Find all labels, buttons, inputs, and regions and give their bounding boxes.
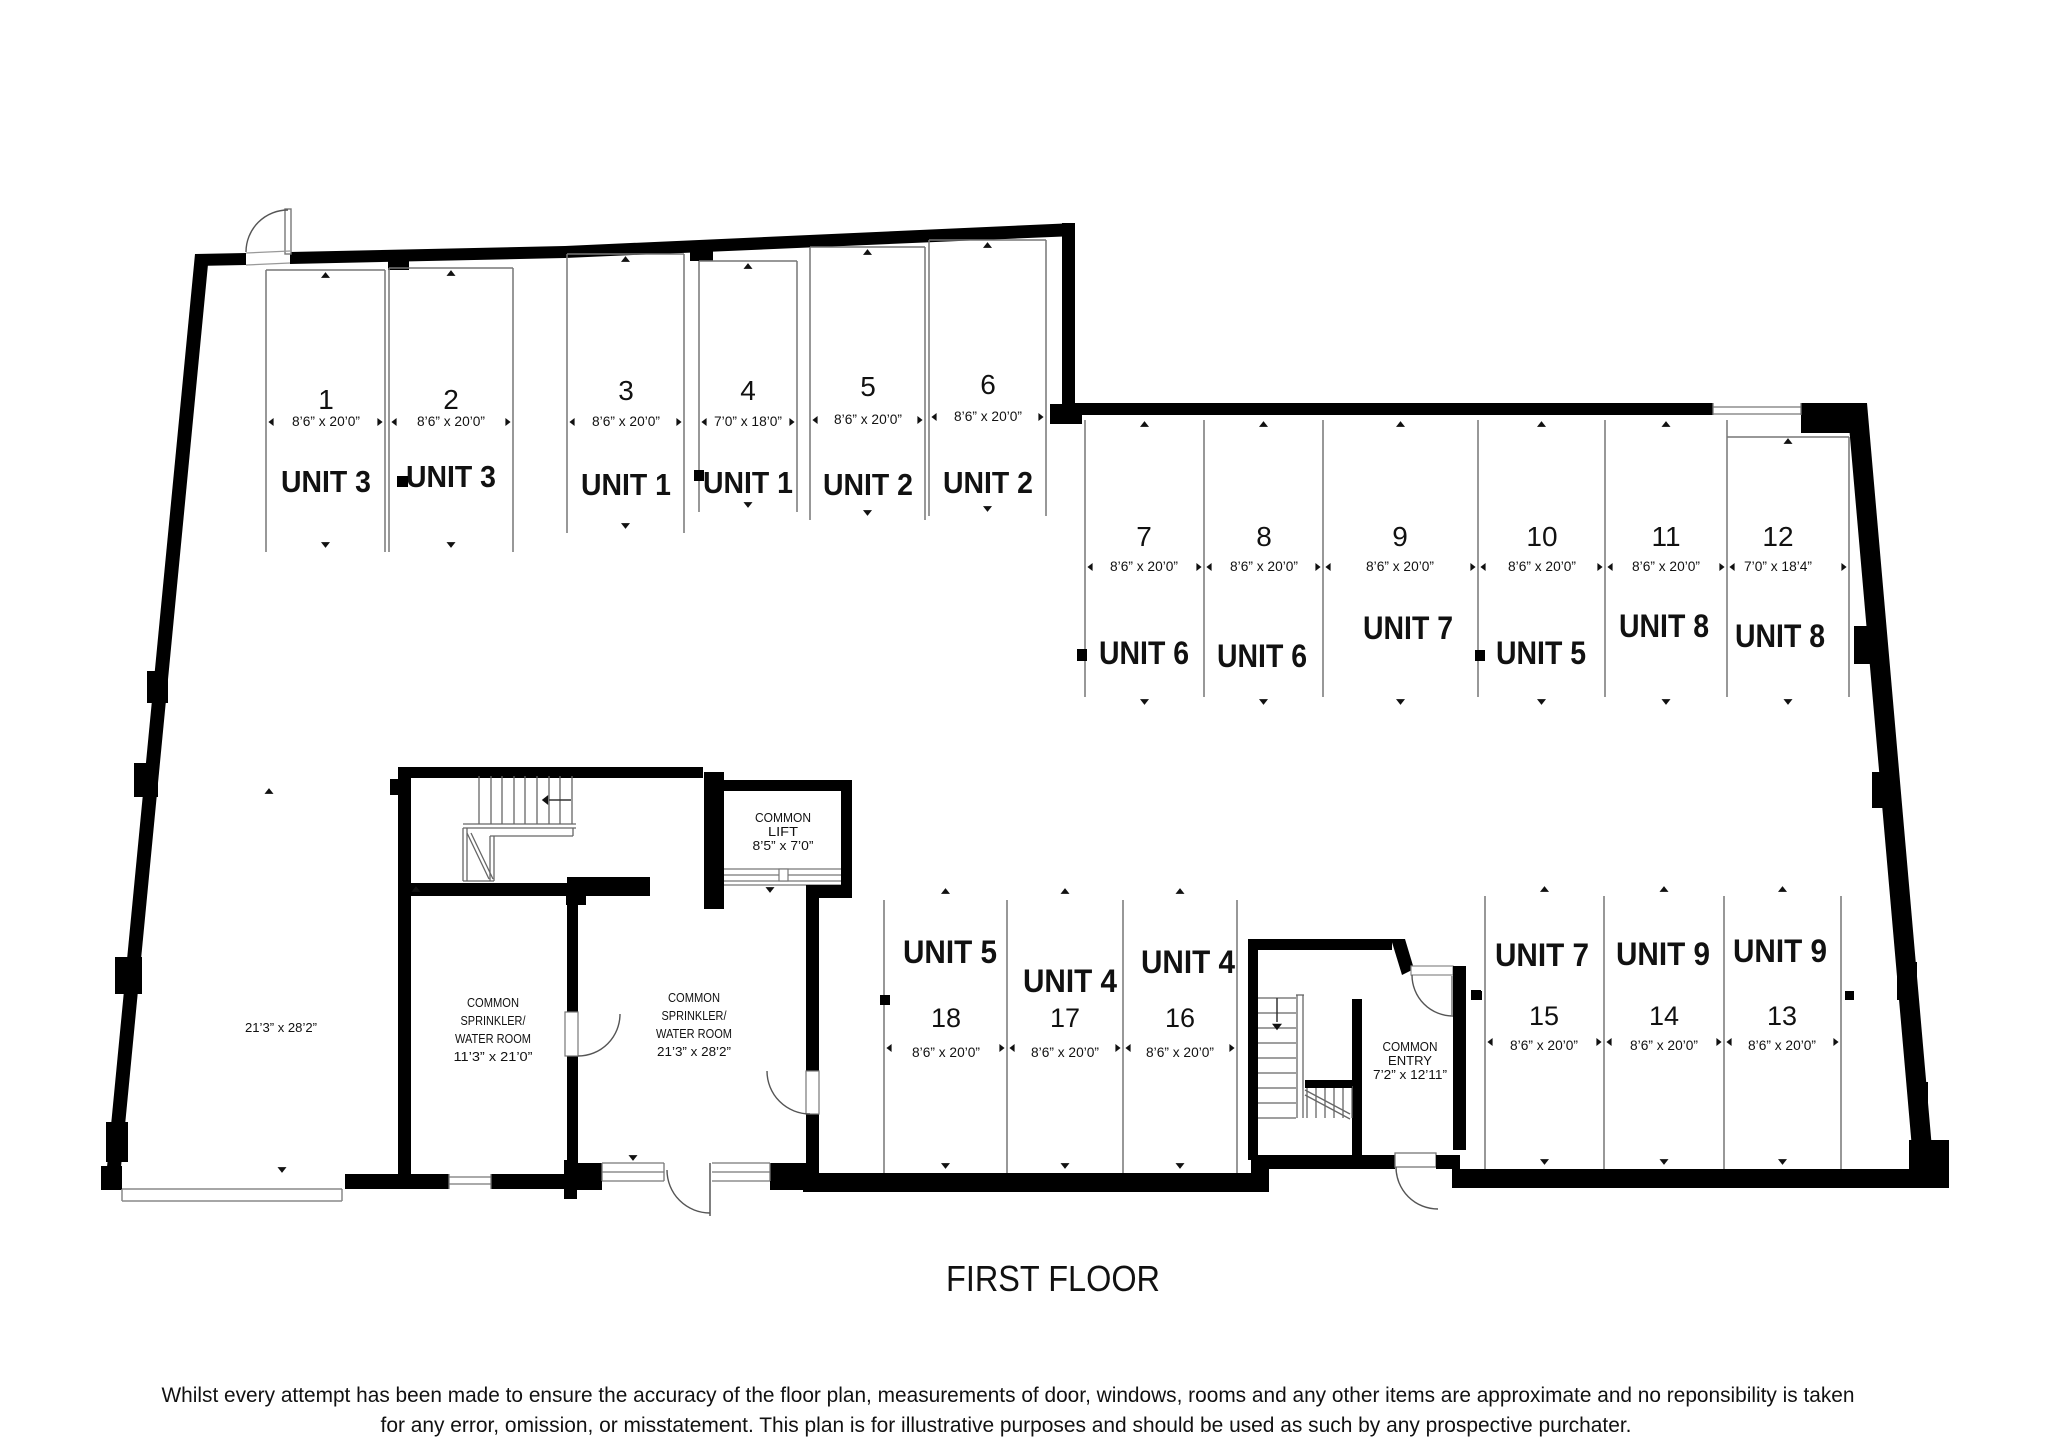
svg-text:8’6” x 20’0”: 8’6” x 20’0” (954, 409, 1022, 424)
svg-text:UNIT 2: UNIT 2 (943, 465, 1033, 500)
svg-text:8’6” x 20’0”: 8’6” x 20’0” (912, 1045, 980, 1060)
svg-text:WATER ROOM: WATER ROOM (656, 1026, 732, 1041)
svg-text:SPRINKLER/: SPRINKLER/ (461, 1013, 526, 1028)
svg-text:7: 7 (1136, 521, 1152, 552)
svg-text:UNIT 3: UNIT 3 (406, 459, 496, 494)
svg-text:for any error, omission, or mi: for any error, omission, or misstatement… (381, 1414, 1632, 1437)
svg-text:8’6” x 20’0”: 8’6” x 20’0” (1508, 559, 1576, 574)
svg-text:8’6” x 20’0”: 8’6” x 20’0” (1031, 1045, 1099, 1060)
svg-text:11: 11 (1651, 521, 1680, 552)
svg-text:15: 15 (1529, 1001, 1559, 1031)
svg-text:COMMON: COMMON (755, 810, 811, 825)
svg-text:8’6” x 20’0”: 8’6” x 20’0” (592, 414, 660, 429)
svg-text:UNIT 5: UNIT 5 (1496, 635, 1586, 671)
svg-text:8’6” x 20’0”: 8’6” x 20’0” (1366, 559, 1434, 574)
svg-text:COMMON: COMMON (668, 990, 720, 1005)
svg-text:FIRST FLOOR: FIRST FLOOR (946, 1258, 1160, 1299)
svg-text:UNIT 3: UNIT 3 (281, 464, 371, 499)
svg-text:8’6” x 20’0”: 8’6” x 20’0” (1146, 1045, 1214, 1060)
svg-text:UNIT 7: UNIT 7 (1363, 610, 1453, 646)
svg-text:2: 2 (443, 384, 459, 415)
svg-text:8’5” x 7’0”: 8’5” x 7’0” (753, 838, 814, 853)
svg-text:6: 6 (980, 369, 996, 400)
svg-text:8’6” x 20’0”: 8’6” x 20’0” (1748, 1038, 1816, 1053)
svg-text:21’3” x 28’2”: 21’3” x 28’2” (657, 1044, 731, 1059)
svg-text:17: 17 (1050, 1003, 1080, 1033)
svg-text:11’3” x 21’0”: 11’3” x 21’0” (454, 1049, 533, 1064)
svg-text:UNIT 6: UNIT 6 (1099, 635, 1189, 671)
svg-text:8’6” x 20’0”: 8’6” x 20’0” (1110, 559, 1178, 574)
svg-text:8: 8 (1256, 521, 1272, 552)
svg-text:1: 1 (318, 384, 334, 415)
svg-text:8’6” x 20’0”: 8’6” x 20’0” (1230, 559, 1298, 574)
svg-text:4: 4 (740, 375, 756, 406)
svg-text:WATER ROOM: WATER ROOM (455, 1031, 531, 1046)
svg-text:UNIT 1: UNIT 1 (581, 467, 671, 502)
svg-text:SPRINKLER/: SPRINKLER/ (662, 1008, 727, 1023)
svg-text:12: 12 (1762, 521, 1793, 552)
svg-text:7’0” x 18’4”: 7’0” x 18’4” (1744, 559, 1812, 574)
svg-text:COMMON: COMMON (1383, 1039, 1438, 1054)
svg-text:8’6” x 20’0”: 8’6” x 20’0” (1510, 1038, 1578, 1053)
svg-text:COMMON: COMMON (467, 995, 519, 1010)
svg-text:UNIT 9: UNIT 9 (1616, 936, 1710, 972)
svg-text:UNIT 6: UNIT 6 (1217, 638, 1307, 674)
svg-text:3: 3 (618, 375, 634, 406)
svg-text:ENTRY: ENTRY (1388, 1053, 1432, 1068)
svg-text:LIFT: LIFT (768, 824, 798, 839)
svg-text:8’6” x 20’0”: 8’6” x 20’0” (417, 414, 485, 429)
svg-text:8’6” x 20’0”: 8’6” x 20’0” (292, 414, 360, 429)
svg-text:UNIT 8: UNIT 8 (1619, 608, 1709, 644)
svg-text:18: 18 (931, 1003, 961, 1033)
svg-text:Whilst every attempt has been: Whilst every attempt has been made to en… (162, 1384, 1855, 1407)
svg-text:UNIT 1: UNIT 1 (703, 465, 793, 500)
svg-text:7’2” x 12’11”: 7’2” x 12’11” (1373, 1067, 1447, 1082)
svg-text:13: 13 (1767, 1001, 1797, 1031)
svg-text:16: 16 (1165, 1003, 1195, 1033)
svg-text:8’6” x 20’0”: 8’6” x 20’0” (1632, 559, 1700, 574)
svg-text:8’6” x 20’0”: 8’6” x 20’0” (834, 412, 902, 427)
svg-text:UNIT 5: UNIT 5 (903, 934, 997, 970)
svg-text:9: 9 (1392, 521, 1408, 552)
svg-text:5: 5 (860, 371, 876, 402)
svg-text:UNIT 9: UNIT 9 (1733, 933, 1827, 969)
svg-text:10: 10 (1526, 521, 1557, 552)
svg-text:UNIT 4: UNIT 4 (1141, 944, 1235, 980)
svg-text:UNIT 7: UNIT 7 (1495, 937, 1589, 973)
svg-text:UNIT 2: UNIT 2 (823, 467, 913, 502)
svg-text:21’3” x 28’2”: 21’3” x 28’2” (245, 1020, 317, 1035)
svg-text:UNIT 4: UNIT 4 (1023, 963, 1117, 999)
svg-text:14: 14 (1649, 1001, 1679, 1031)
svg-text:7’0” x 18’0”: 7’0” x 18’0” (714, 414, 782, 429)
svg-text:UNIT 8: UNIT 8 (1735, 618, 1825, 654)
svg-text:8’6” x 20’0”: 8’6” x 20’0” (1630, 1038, 1698, 1053)
